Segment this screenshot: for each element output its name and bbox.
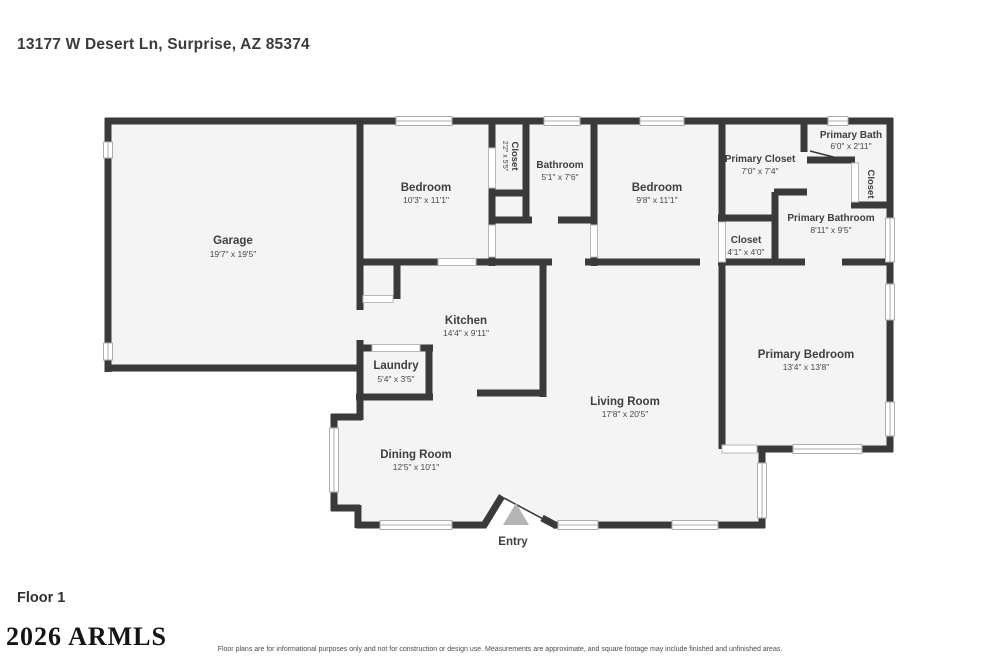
floor-areas (105, 118, 893, 521)
room-label-kitchen: Kitchen14'4" x 9'11" (443, 315, 489, 338)
page-title: 13177 W Desert Ln, Surprise, AZ 85374 (17, 36, 310, 54)
floor-label: Floor 1 (17, 590, 65, 606)
floorplan-svg: Garage19'7" x 19'5" Bedroom10'3" x 11'1"… (0, 0, 1000, 667)
room-label-closet-right: Closet (865, 169, 876, 199)
floorplan-page: 13177 W Desert Ln, Surprise, AZ 85374 (0, 0, 1000, 667)
room-label-bedroom-1: Bedroom10'3" x 11'1" (401, 182, 451, 205)
room-label-bedroom-2: Bedroom9'8" x 11'1" (632, 182, 682, 205)
disclaimer-text: Floor plans are for informational purpos… (0, 646, 1000, 653)
entry-label: Entry (498, 536, 528, 548)
room-label-closet-1: Closet2'2" x 5'5" (501, 141, 520, 172)
